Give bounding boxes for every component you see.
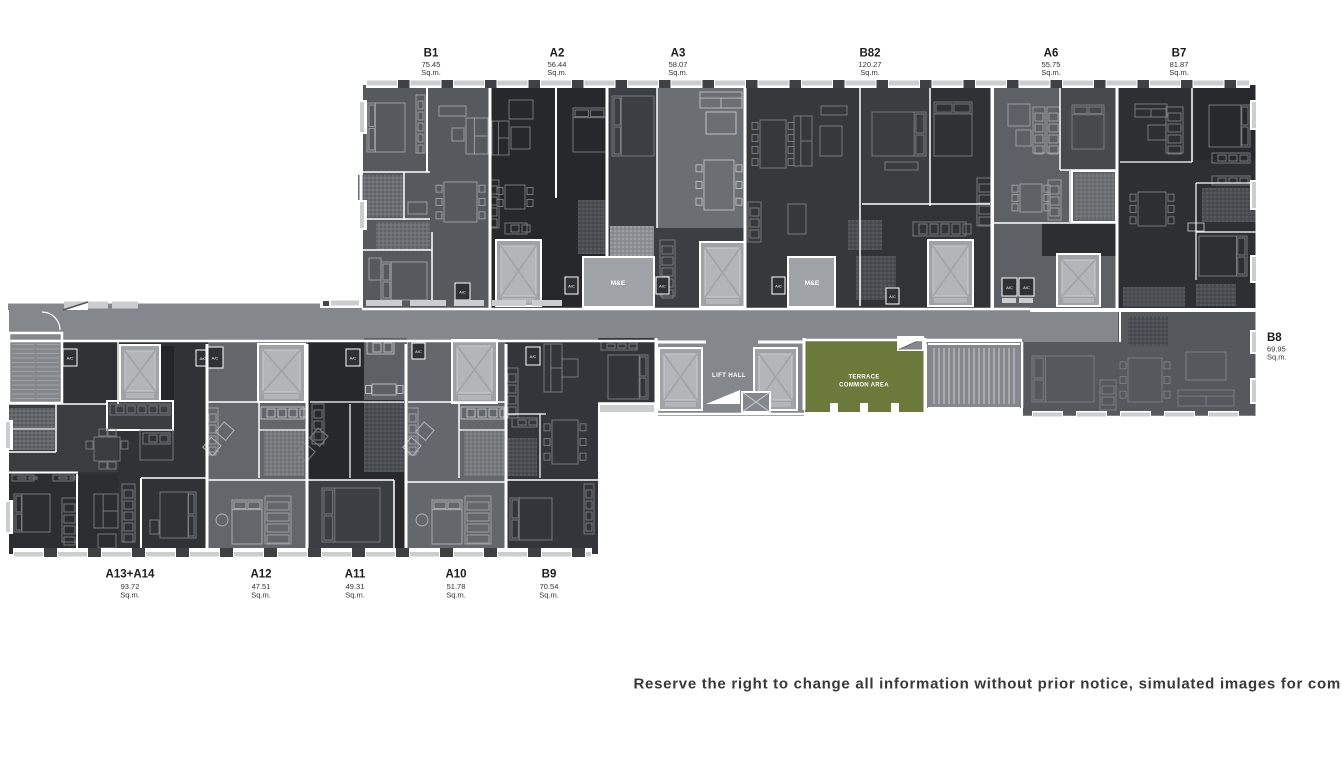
svg-text:B7: B7 bbox=[1172, 48, 1187, 60]
svg-text:Sq.m.: Sq.m. bbox=[345, 591, 365, 600]
svg-text:Sq.m.: Sq.m. bbox=[539, 591, 559, 600]
svg-text:B1: B1 bbox=[424, 48, 439, 60]
svg-text:B9: B9 bbox=[542, 569, 557, 581]
svg-text:A/C: A/C bbox=[67, 356, 74, 361]
svg-text:A2: A2 bbox=[550, 48, 565, 60]
svg-text:A/C: A/C bbox=[659, 284, 666, 289]
svg-text:A/C: A/C bbox=[775, 284, 782, 289]
svg-text:A/C: A/C bbox=[200, 356, 207, 361]
svg-text:A/C: A/C bbox=[415, 349, 422, 354]
svg-text:Sq.m.: Sq.m. bbox=[1041, 68, 1061, 77]
svg-text:A/C: A/C bbox=[1023, 285, 1030, 290]
svg-text:Sq.m.: Sq.m. bbox=[251, 591, 271, 600]
svg-text:A12: A12 bbox=[250, 569, 271, 581]
svg-text:Sq.m.: Sq.m. bbox=[120, 591, 140, 600]
svg-text:A11: A11 bbox=[345, 569, 366, 581]
svg-text:A/C: A/C bbox=[1006, 285, 1013, 290]
svg-text:A/C: A/C bbox=[459, 290, 466, 295]
svg-text:Sq.m.: Sq.m. bbox=[1267, 353, 1287, 362]
svg-text:Sq.m.: Sq.m. bbox=[668, 68, 688, 77]
svg-text:A/C: A/C bbox=[530, 354, 537, 359]
svg-text:TERRACE: TERRACE bbox=[848, 375, 879, 381]
svg-text:B8: B8 bbox=[1267, 332, 1282, 344]
svg-text:A3: A3 bbox=[671, 48, 686, 60]
svg-text:A10: A10 bbox=[445, 569, 466, 581]
svg-text:Sq.m.: Sq.m. bbox=[860, 68, 880, 77]
svg-text:LIFT HALL: LIFT HALL bbox=[712, 373, 746, 379]
svg-text:A/C: A/C bbox=[568, 284, 575, 289]
svg-text:B82: B82 bbox=[859, 48, 880, 60]
svg-text:Sq.m.: Sq.m. bbox=[446, 591, 466, 600]
svg-text:Sq.m.: Sq.m. bbox=[547, 68, 567, 77]
svg-text:COMMON AREA: COMMON AREA bbox=[839, 383, 889, 389]
svg-text:Sq.m.: Sq.m. bbox=[1169, 68, 1189, 77]
svg-text:A/C: A/C bbox=[889, 294, 896, 299]
svg-text:M&E: M&E bbox=[611, 280, 626, 287]
svg-text:A6: A6 bbox=[1044, 48, 1059, 60]
svg-text:M&E: M&E bbox=[805, 280, 820, 287]
svg-text:A/C: A/C bbox=[350, 356, 357, 361]
svg-text:Sq.m.: Sq.m. bbox=[421, 68, 441, 77]
svg-text:A/C: A/C bbox=[212, 356, 219, 361]
svg-text:A13+A14: A13+A14 bbox=[106, 569, 156, 581]
svg-text:Reserve the right to change al: Reserve the right to change all informat… bbox=[634, 676, 1341, 693]
